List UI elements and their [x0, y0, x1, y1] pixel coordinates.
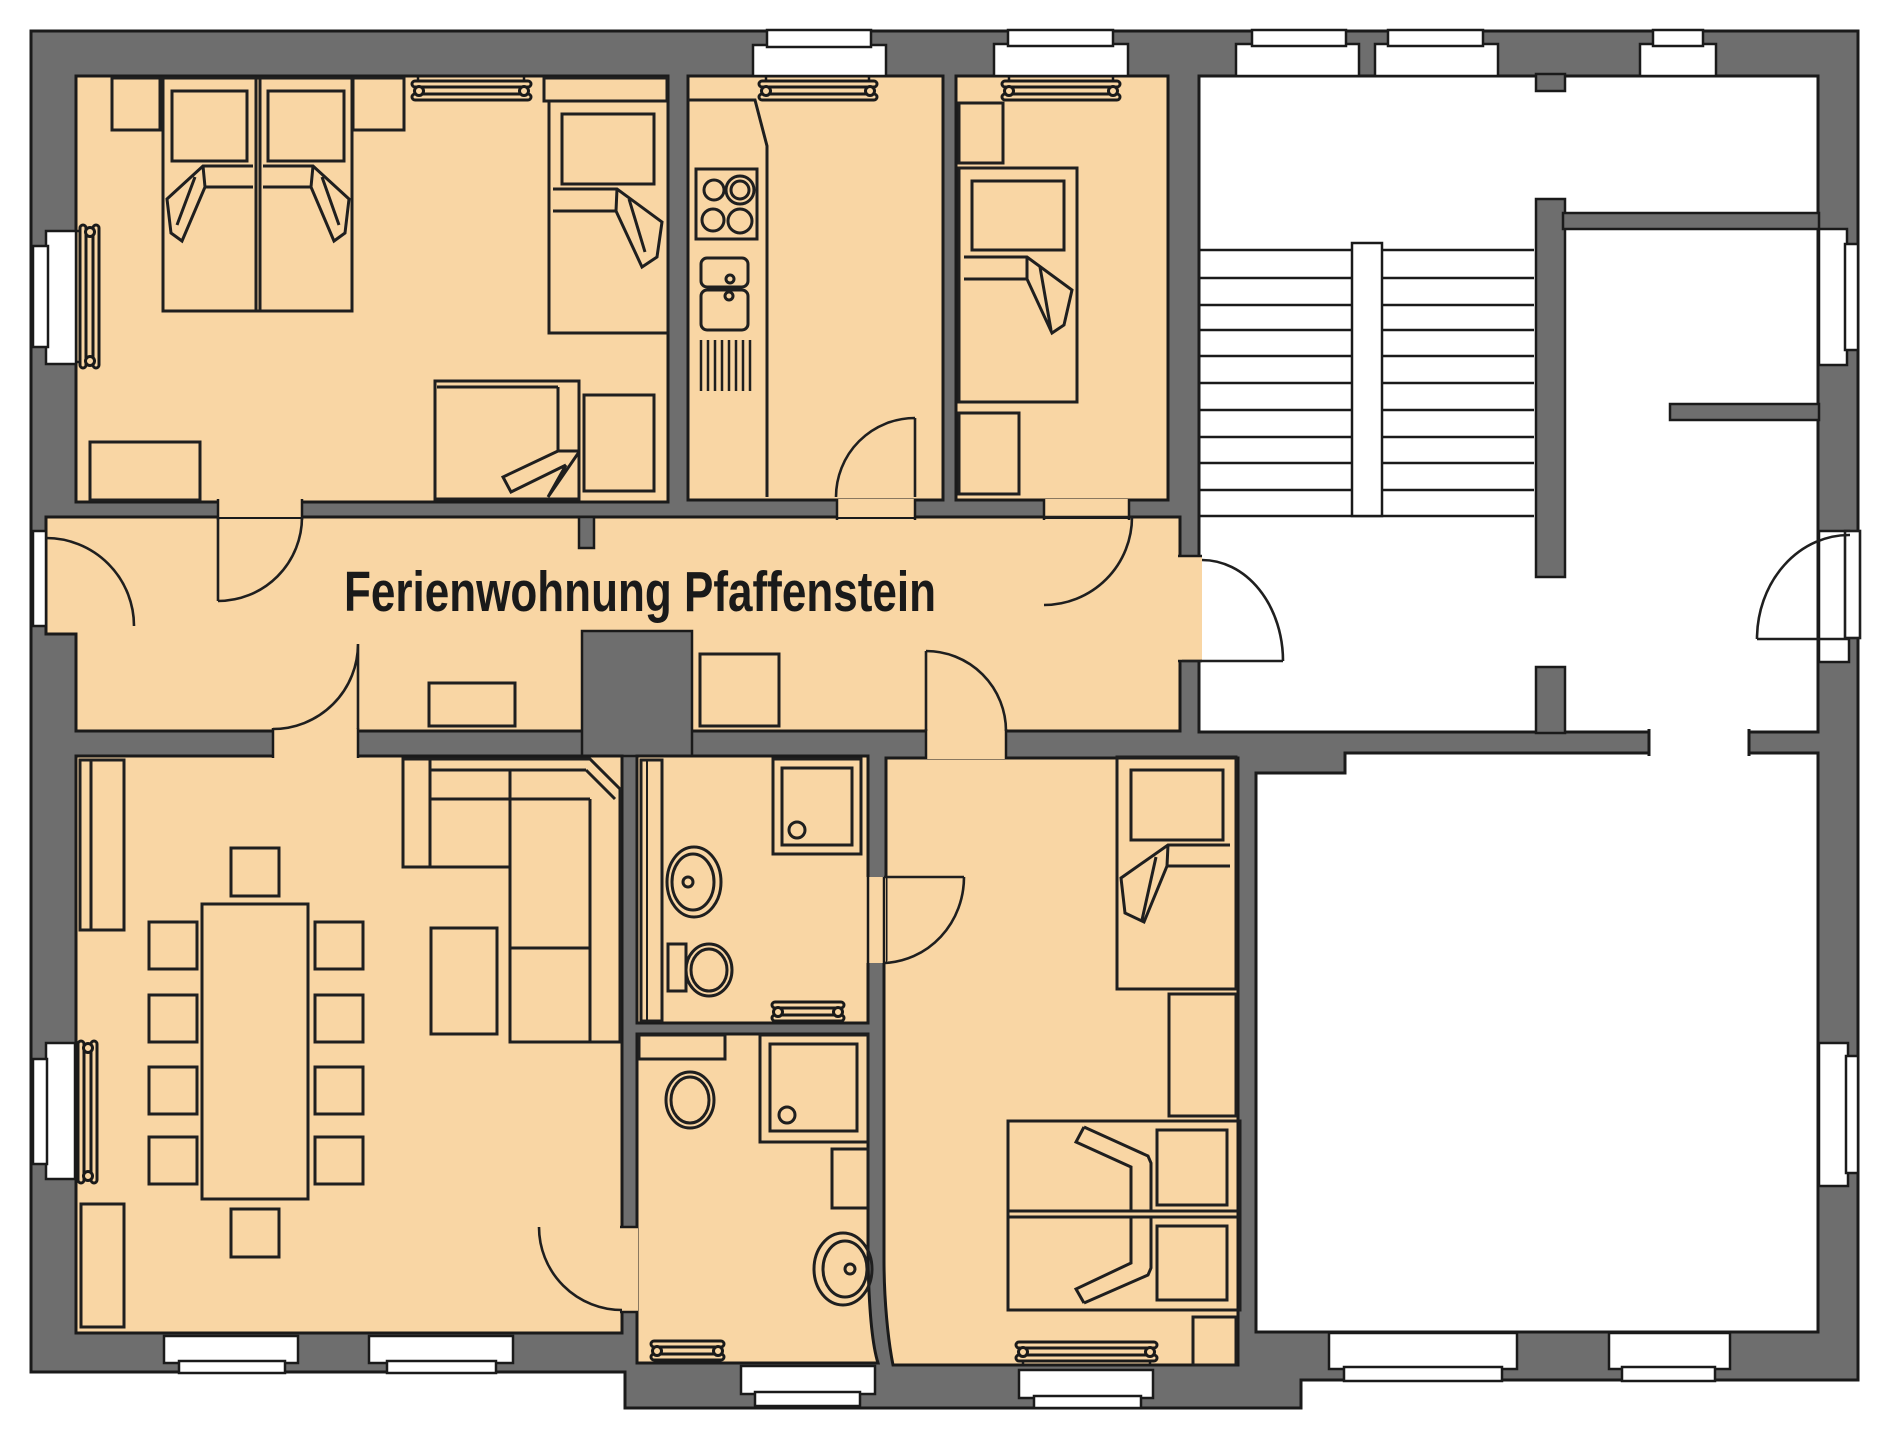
svg-text:Ferienwohnung Pfaffenstein: Ferienwohnung Pfaffenstein: [344, 560, 936, 624]
